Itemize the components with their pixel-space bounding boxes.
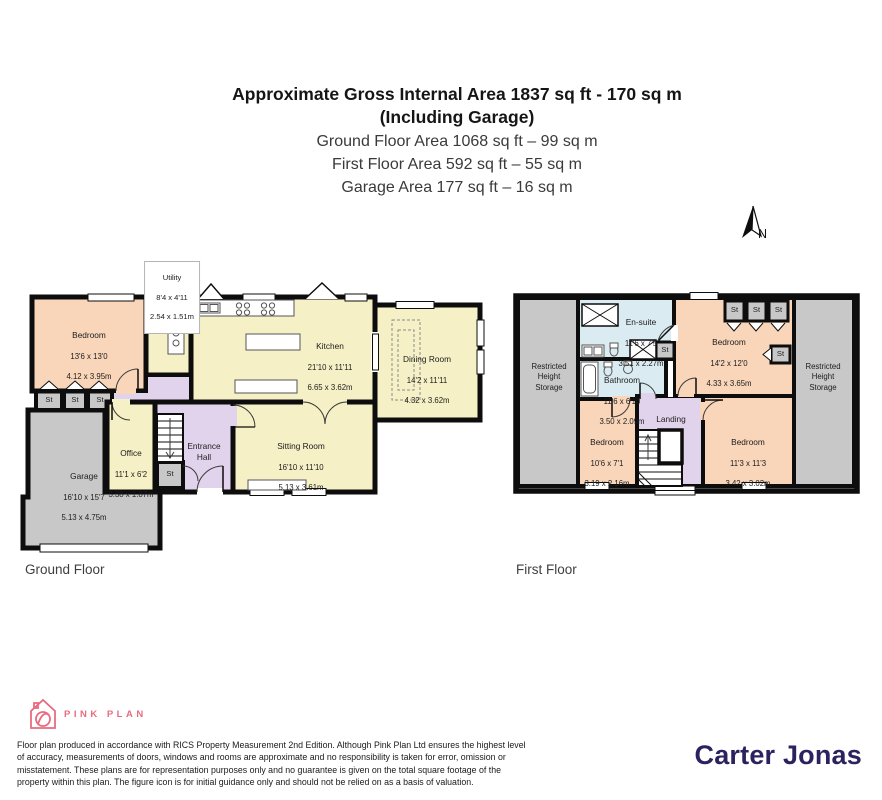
storage-label: St xyxy=(45,395,52,404)
storage-label: St xyxy=(777,349,784,358)
storage-label: St xyxy=(96,395,103,404)
room-label-bedroom: Bedroom 13'6 x 13'0 4.12 x 3.95m xyxy=(66,320,111,393)
room-label-landing: Landing xyxy=(656,404,686,436)
room-label-dining: Dining Room 14'2 x 11'11 4.32 x 3.62m xyxy=(403,344,451,417)
storage-label: St xyxy=(166,469,173,478)
storage-label: St xyxy=(775,305,782,314)
storage-label: St xyxy=(753,305,760,314)
room-label-office: Office 11'1 x 6'2 3.38 x 1.87m xyxy=(108,438,153,511)
restricted-storage-left-label: Restricted Height Storage xyxy=(531,362,566,393)
ground-floor-label: Ground Floor xyxy=(25,562,105,577)
room-label-bedroom3: Bedroom 11'3 x 11'3 3.42 x 3.02m xyxy=(725,427,770,500)
pink-plan-logo-icon xyxy=(31,700,55,728)
room-label-entrance-hall: Entrance Hall xyxy=(187,431,220,473)
pink-plan-brand-text: PINK PLAN xyxy=(64,709,147,720)
room-label-sitting: Sitting Room 16'10 x 11'10 5.13 x 3.61m xyxy=(277,431,325,504)
room-label-kitchen: Kitchen 21'10 x 11'11 6.65 x 3.62m xyxy=(307,331,352,404)
disclaimer-text: Floor plan produced in accordance with R… xyxy=(17,739,527,788)
storage-label: St xyxy=(71,395,78,404)
first-floor-label: First Floor xyxy=(516,562,577,577)
floorplan-page: Approximate Gross Internal Area 1837 sq … xyxy=(0,0,882,800)
carter-jonas-logo-text: Carter Jonas xyxy=(695,740,862,771)
room-label-utility: Utility 8'4 x 4'11 2.54 x 1.51m xyxy=(144,261,200,334)
restricted-storage-right-label: Restricted Height Storage xyxy=(805,362,840,393)
room-label-bedroom1: Bedroom 14'2 x 12'0 4.33 x 3.65m xyxy=(706,327,751,400)
storage-label: St xyxy=(661,345,668,354)
north-label: N xyxy=(758,227,767,241)
storage-label: St xyxy=(731,305,738,314)
room-label-bedroom2: Bedroom 10'6 x 7'1 3.19 x 2.16m xyxy=(584,427,629,500)
room-label-garage: Garage 16'10 x 15'7 5.13 x 4.75m xyxy=(61,461,106,534)
